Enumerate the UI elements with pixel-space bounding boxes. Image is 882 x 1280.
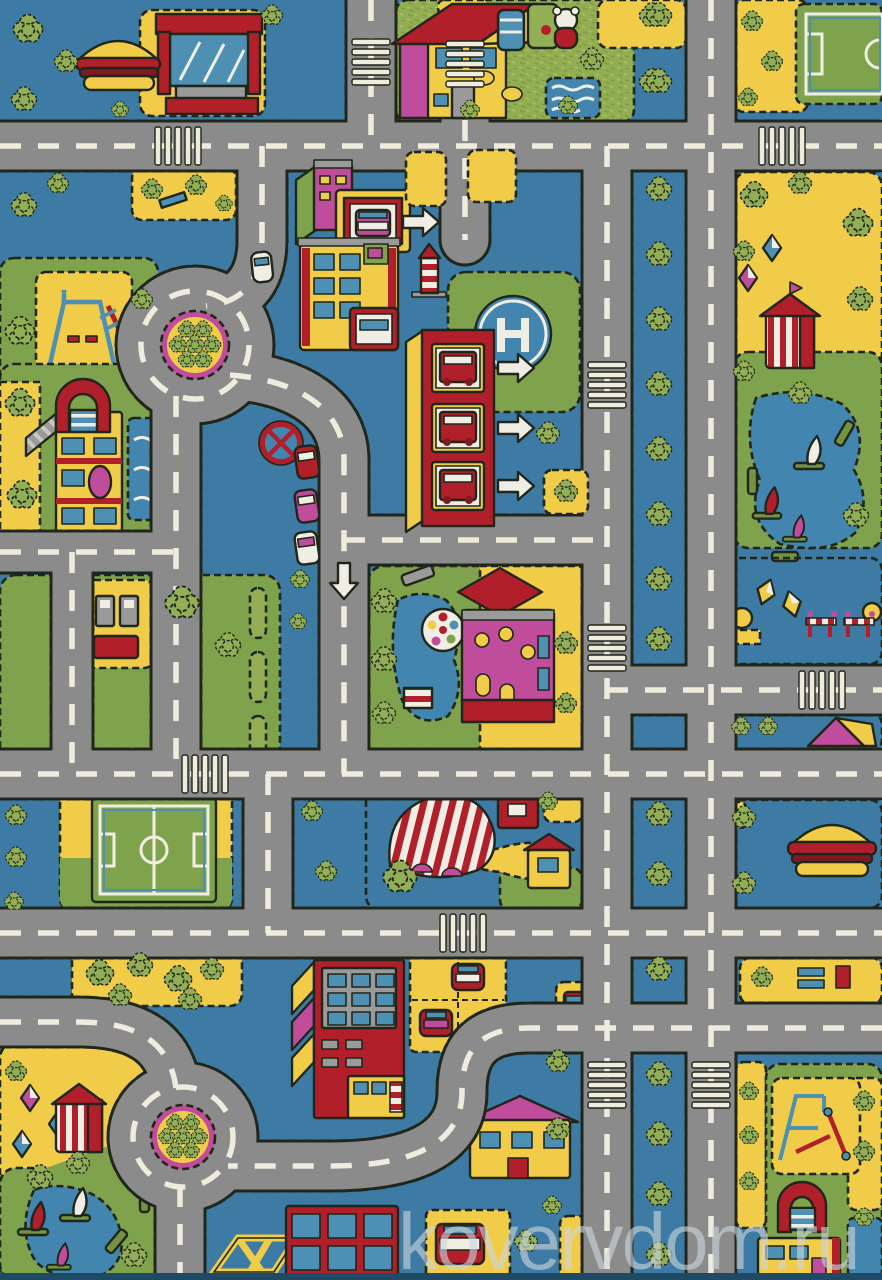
rug-edge	[0, 1273, 882, 1280]
football-pitch-top-right	[796, 4, 882, 104]
hedge	[250, 652, 266, 702]
chick	[502, 87, 522, 101]
football-pitch-west	[60, 788, 232, 912]
waterwheel	[422, 609, 464, 651]
mill-building	[458, 568, 554, 722]
apartment-block-2	[286, 1206, 398, 1280]
gas-station	[0, 575, 280, 774]
fire-engine-bay	[432, 462, 484, 510]
watermill-block	[368, 565, 592, 758]
fire-engine-bay	[432, 404, 484, 452]
white-car	[251, 251, 274, 283]
parked-cars	[294, 445, 320, 566]
parked-car	[420, 1010, 452, 1036]
car-kiosk	[426, 1210, 510, 1280]
parked-car	[452, 964, 484, 990]
hedge	[250, 588, 266, 638]
town-school	[298, 238, 400, 350]
rug-product-photo: kovervdom.ru	[0, 0, 882, 1280]
fire-engine-bay	[432, 344, 484, 392]
play-rug	[0, 0, 882, 1280]
fire-station-with-engines	[406, 330, 494, 532]
